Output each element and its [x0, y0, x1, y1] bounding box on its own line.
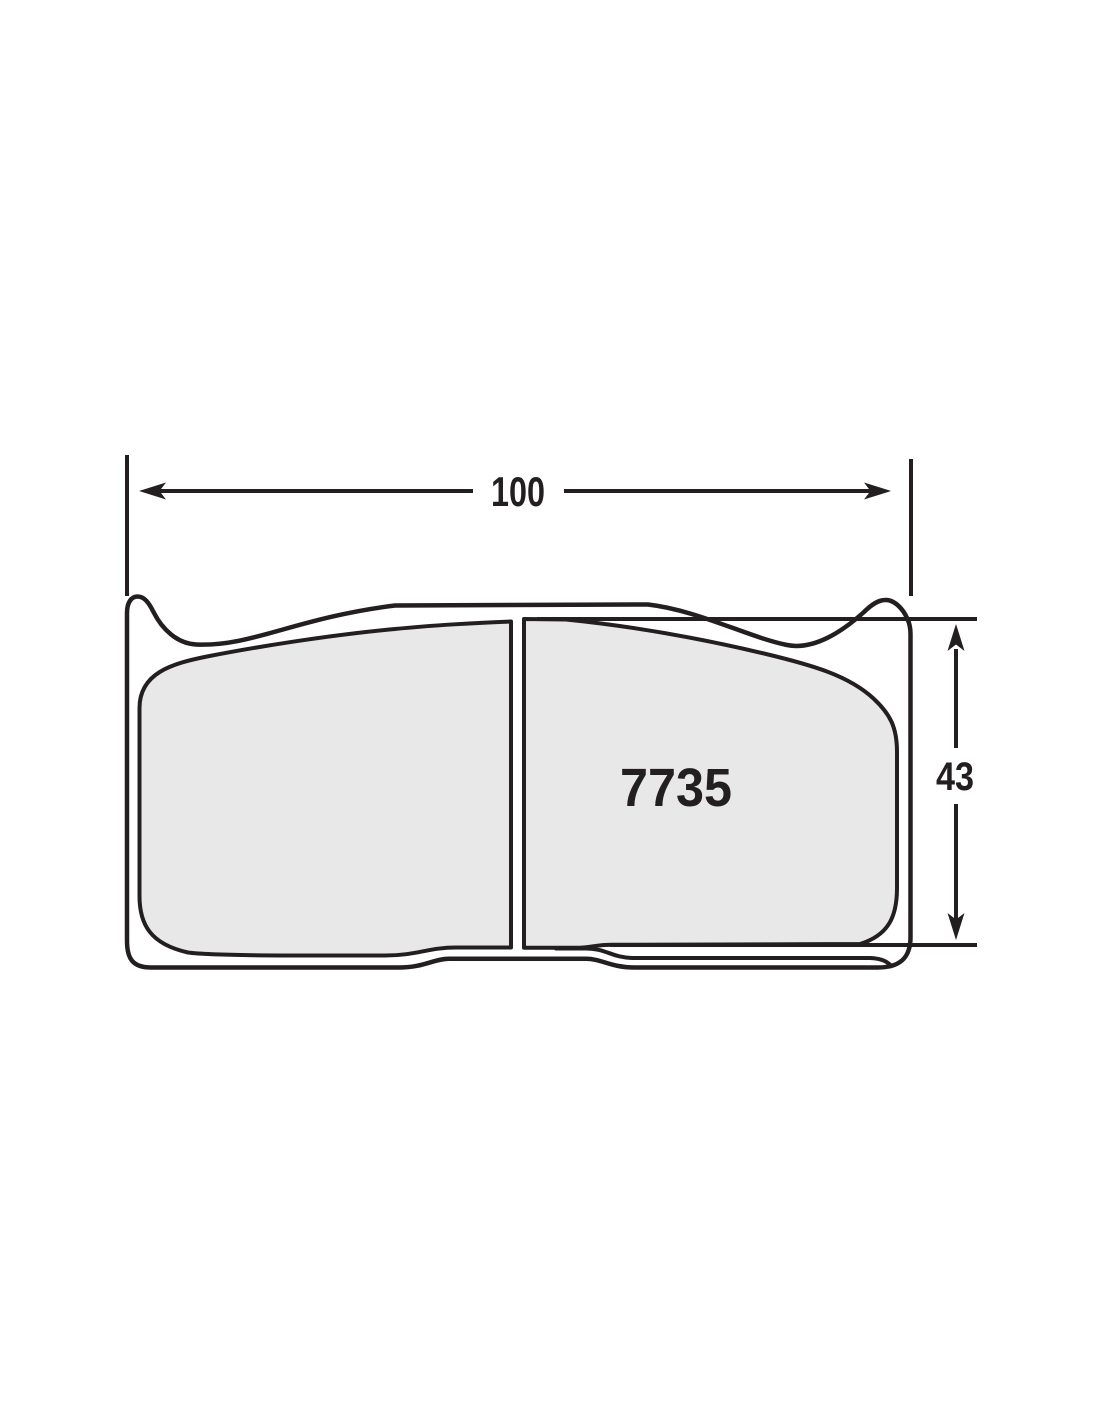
brake-pad-diagram: 100 43 7735	[0, 0, 1100, 1422]
width-dimension: 100	[127, 455, 911, 596]
part-number-label: 7735	[620, 758, 732, 818]
page: 100 43 7735	[0, 0, 1100, 1422]
dimension-arrowhead-up-icon	[948, 624, 965, 651]
width-dimension-value: 100	[491, 468, 545, 515]
friction-material-left	[140, 622, 512, 956]
height-dimension-value: 43	[936, 755, 974, 799]
